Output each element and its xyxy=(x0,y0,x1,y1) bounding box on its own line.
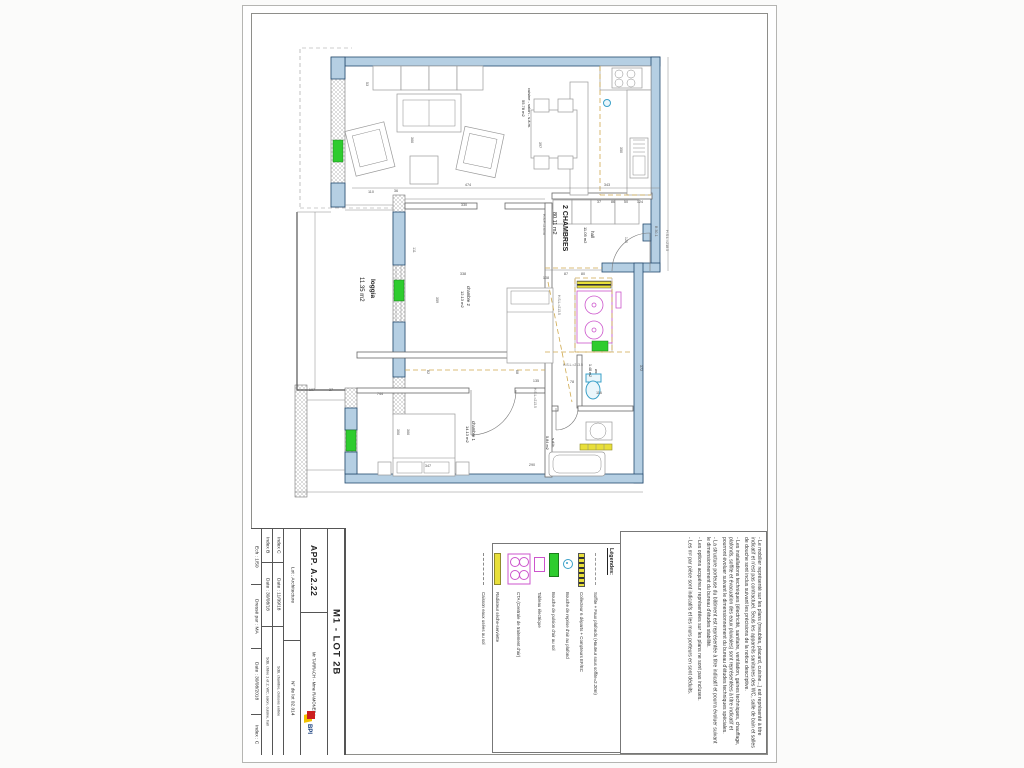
collecteur-icon xyxy=(577,281,611,288)
coffee-table-icon xyxy=(410,156,438,184)
dim-label: 135 xyxy=(533,379,539,383)
kitchen-fixtures xyxy=(570,66,651,195)
dim-label: 37 xyxy=(329,388,333,392)
legend-label: Caisson eaux usées au sol xyxy=(481,592,486,644)
notes-text: - Le mobilier représenté sur les plans (… xyxy=(625,537,762,748)
annot-label: H.S.P.=2.60m xyxy=(542,214,546,235)
dim-label: 36 xyxy=(394,189,398,193)
legend-label: Bouche de pulsion d'air au sol xyxy=(551,592,556,650)
room-label: 1.48 m2 xyxy=(588,364,592,377)
scale-value: Ech : 1/50 xyxy=(254,546,259,568)
legend-item: Soffite + Faux plafonds (Hauteur sous so… xyxy=(589,548,602,695)
legend-item: Collecteur 6 départs + Compteurs EF/EC xyxy=(575,548,588,672)
title-col-sheet-ref: M1 - LOT 2B xyxy=(328,529,345,755)
bathroom-door-arc xyxy=(556,408,578,430)
room-label: chambre 1 xyxy=(471,421,476,441)
radiateur-bar-icon xyxy=(494,553,501,585)
dim-label: 350 xyxy=(619,147,623,153)
caisson-dash-icon xyxy=(483,553,484,585)
room-label: 80.11 m2 xyxy=(551,212,557,235)
title-col-index-c: Index C Date : 11/09/18 SdB, chambre, cl… xyxy=(273,529,284,755)
bpi-logo: BPI xyxy=(299,711,319,753)
dim-label: 108 xyxy=(543,276,549,280)
legend-item: Tableau électrique xyxy=(533,548,546,628)
dim-label: 347 xyxy=(425,464,431,468)
cta-icon xyxy=(577,291,612,343)
legend-label: Collecteur 6 départs + Compteurs EF/EC xyxy=(579,592,584,672)
bathtub-icon xyxy=(549,452,605,476)
dim-label: 290 xyxy=(529,463,535,467)
legend-label: Radiateur sèche-serviette xyxy=(495,592,500,642)
annot-label: B 30-1 xyxy=(654,226,658,237)
dim-label: 82 xyxy=(426,370,430,374)
window-vent-marker xyxy=(394,280,404,301)
dim-label: 744 xyxy=(377,392,383,396)
index-b-name: Index B xyxy=(265,537,270,553)
legend-item: Caisson eaux usées au sol xyxy=(477,548,490,644)
room-label: s.d.b. xyxy=(551,438,556,448)
room-label: cuisine - salon - s.à.m. xyxy=(527,88,532,128)
title-col-scale: Ech : 1/50 Dressé par : MA Date : 30/08/… xyxy=(251,529,262,755)
dim-label: 343 xyxy=(604,183,610,187)
annot-label: H.S.L.=213.5 xyxy=(557,295,561,315)
legend-item: Bouche de pulsion d'air au sol xyxy=(547,548,560,650)
dim-label: 50 xyxy=(624,200,628,204)
annot-label: H.S.L.=213.5 xyxy=(563,363,583,367)
room-label: wc xyxy=(594,369,598,374)
apartment-ref: APP. A.2.22 xyxy=(309,545,319,596)
lot-name: Lot : Architecture xyxy=(290,567,295,603)
legend-label: Bouche de reprise d'air au plafond xyxy=(565,592,570,659)
party-walls xyxy=(295,57,405,497)
sheet-index: Index : C xyxy=(254,725,259,744)
room-label: chambre 2 xyxy=(466,286,471,306)
dim-label: 110 xyxy=(368,190,374,194)
bpi-logo-icon xyxy=(304,711,315,722)
room-label: 55.78 m2 xyxy=(521,100,526,117)
drawn-by: Dressé par : MA xyxy=(254,599,259,634)
dim-label: 338 xyxy=(460,272,466,276)
dim-label: 53 xyxy=(365,82,369,86)
note-paragraph: - La structure porteuse du bâtiment est … xyxy=(705,537,718,748)
dim-label: 372 xyxy=(639,365,643,371)
index-c-desc: SdB, chambre, cloisons entrée xyxy=(276,666,281,716)
sheet-ref: M1 - LOT 2B xyxy=(331,609,342,675)
room-label: 2 CHAMBRES xyxy=(561,205,568,252)
dim-label: 330 xyxy=(461,203,467,207)
title-block: Ech : 1/50 Dressé par : MA Date : 30/08/… xyxy=(251,528,346,755)
dim-label: 37 xyxy=(597,200,601,204)
collecteur-bar-icon xyxy=(578,553,585,587)
note-paragraph: - Le mobilier représenté sur les plans (… xyxy=(743,537,762,748)
dining-table-icon xyxy=(531,110,577,158)
dim-label: 68 xyxy=(515,370,519,374)
dim-label: 80 xyxy=(581,272,585,276)
annot-label: H.S.L.=213.5 xyxy=(533,388,537,408)
legend-label: CTA (Centrale de traitement d'air) xyxy=(516,592,521,657)
index-c-date: Date : 11/09/18 xyxy=(276,578,281,610)
dim-label: 87 xyxy=(564,272,568,276)
room-label: 11.35 m2 xyxy=(358,277,364,302)
dim-label: 366 xyxy=(406,429,410,435)
title-col-index-b: Index B Date : 30/08/18 SdB, chbre 1 et … xyxy=(262,529,273,755)
dim-label: 116 xyxy=(596,391,602,395)
room-label: 5.84 m2 xyxy=(545,436,549,450)
bedroom1-door-arc xyxy=(471,390,516,435)
air-reprise-marker xyxy=(604,100,611,107)
dim-label: 107 xyxy=(309,388,315,392)
room-label: 14.13 m2 xyxy=(465,426,470,443)
dim-label: 111 xyxy=(412,247,416,253)
tableau-electrique-icon xyxy=(616,292,621,308)
client-names: Mr TARRACH - Mme RAMONEDA xyxy=(312,652,317,716)
plan-sheet-page: 2 CHAMBRES80.11 m2hall11.05 m2cuisine - … xyxy=(0,0,1024,768)
sheet-date: Date : 30/08/2018 xyxy=(254,662,259,700)
dim-label: 359 xyxy=(435,297,439,303)
notes-panel: - Le mobilier représenté sur les plans (… xyxy=(620,531,767,754)
legend-label: Tableau électrique xyxy=(537,592,542,628)
legend-header-item: Légendes: xyxy=(603,548,619,575)
armchair-icon xyxy=(456,126,504,177)
pulsion-rect-icon xyxy=(549,553,559,577)
dim-label: 78 xyxy=(570,380,574,384)
legend-item: Radiateur sèche-serviette xyxy=(491,548,504,642)
window-vent-marker xyxy=(346,430,356,451)
cta-box-icon xyxy=(507,553,531,587)
dim-label: 124 xyxy=(637,200,643,204)
dim-label: 474 xyxy=(465,183,471,187)
room-label: loggia xyxy=(369,279,376,299)
tableau-rect-icon xyxy=(534,557,545,572)
room-label: 12.13 m2 xyxy=(460,291,465,308)
index-b-desc: SdB, chbre 1 et 2, WC, salon, cuisine, h… xyxy=(265,657,270,726)
air-pulsion-marker xyxy=(592,341,608,351)
room-label: hall xyxy=(590,231,595,238)
armchair-icon xyxy=(345,122,395,176)
loggia-outline xyxy=(297,205,393,390)
dim-label: 120 xyxy=(624,237,628,243)
reprise-circle-icon xyxy=(563,559,573,569)
living-room-furniture xyxy=(345,66,577,184)
index-c-name: Index C xyxy=(276,537,281,554)
note-paragraph: - Les installations techniques (électric… xyxy=(721,537,740,748)
lot-number: N° de lot 02.014 xyxy=(290,681,295,715)
window-vent-marker xyxy=(333,140,343,162)
legend-panel: Légendes: Soffite + Faux plafonds (Haute… xyxy=(492,543,622,753)
legend-label: Soffite + Faux plafonds (Hauteur sous so… xyxy=(593,592,598,695)
dim-label: 86 xyxy=(611,200,615,204)
annot-label: H.S.L.=218.5 xyxy=(665,230,669,251)
soffite-dash-icon xyxy=(595,553,596,585)
legend-title: Légendes: xyxy=(608,548,614,575)
dim-label: 366 xyxy=(410,137,414,143)
dim-label: 306 xyxy=(396,429,400,435)
legend-item: Bouche de reprise d'air au plafond xyxy=(561,548,574,659)
room-label: 11.05 m2 xyxy=(583,227,588,244)
bpi-logo-text: BPI xyxy=(306,724,312,734)
dim-label: 397 xyxy=(538,142,542,148)
note-paragraph: - Les options acquéreur représentées sur… xyxy=(695,537,701,748)
legend-item: CTA (Centrale de traitement d'air) xyxy=(505,548,532,657)
exterior-walls xyxy=(345,57,660,483)
index-b-date: Date : 30/08/18 xyxy=(265,578,270,611)
note-paragraph: - Les m² par pièce sont indicatifs et le… xyxy=(686,537,692,748)
